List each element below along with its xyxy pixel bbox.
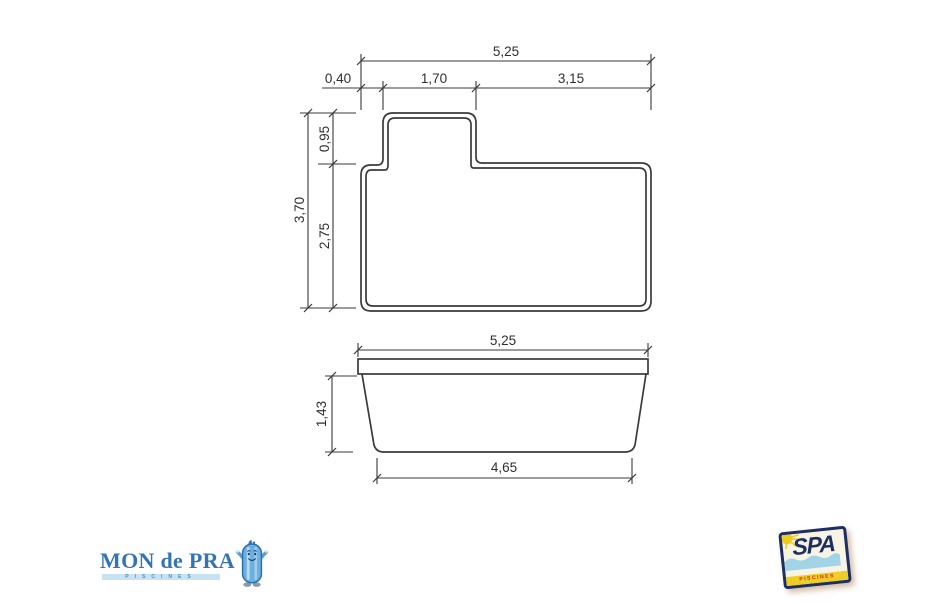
dim-side-top-width: 5,25 <box>490 333 516 348</box>
side-dimension-lines <box>332 350 648 478</box>
dim-plan-notch-width: 1,70 <box>421 71 447 86</box>
mondepra-mascot-icon <box>236 537 268 589</box>
pool-dimension-drawing-page: 5,25 0,40 1,70 3,15 3,70 0,95 2,75 <box>0 0 940 600</box>
spa-badge-inner: SPA PISCINES <box>782 529 849 586</box>
plan-dimension-lines <box>308 61 651 308</box>
pool-side-rim <box>358 359 648 374</box>
mondepra-tagline: PISCINES <box>125 574 196 579</box>
dim-plan-main-length: 2,75 <box>317 223 332 249</box>
mondepra-logo: MON de PRA PISCINES <box>100 537 268 595</box>
dim-plan-total-width: 5,25 <box>493 44 519 59</box>
dim-plan-offset-left: 0,40 <box>325 71 351 86</box>
spa-logo-badge: SPA PISCINES <box>778 526 852 590</box>
dim-plan-total-length: 3,70 <box>292 197 307 223</box>
side-view: 5,25 1,43 4,65 <box>314 333 652 484</box>
mondepra-wordmark: MON de PRA <box>100 548 235 574</box>
technical-drawing: 5,25 0,40 1,70 3,15 3,70 0,95 2,75 <box>0 0 940 600</box>
pool-side-body <box>362 374 646 452</box>
pool-plan-outline-outer <box>361 113 651 311</box>
plan-extension-lines <box>300 54 651 308</box>
dim-plan-right-width: 3,15 <box>558 71 584 86</box>
side-extension-lines <box>325 343 648 484</box>
plan-dimension-ticks <box>304 57 655 312</box>
pool-plan-outline-inner <box>366 118 646 306</box>
plan-view: 5,25 0,40 1,70 3,15 3,70 0,95 2,75 <box>292 44 655 312</box>
dim-plan-notch-length: 0,95 <box>317 126 332 152</box>
dim-side-depth: 1,43 <box>314 401 329 427</box>
dim-side-bottom-width: 4,65 <box>491 460 517 475</box>
mondepra-tagline-band: PISCINES <box>102 574 220 580</box>
